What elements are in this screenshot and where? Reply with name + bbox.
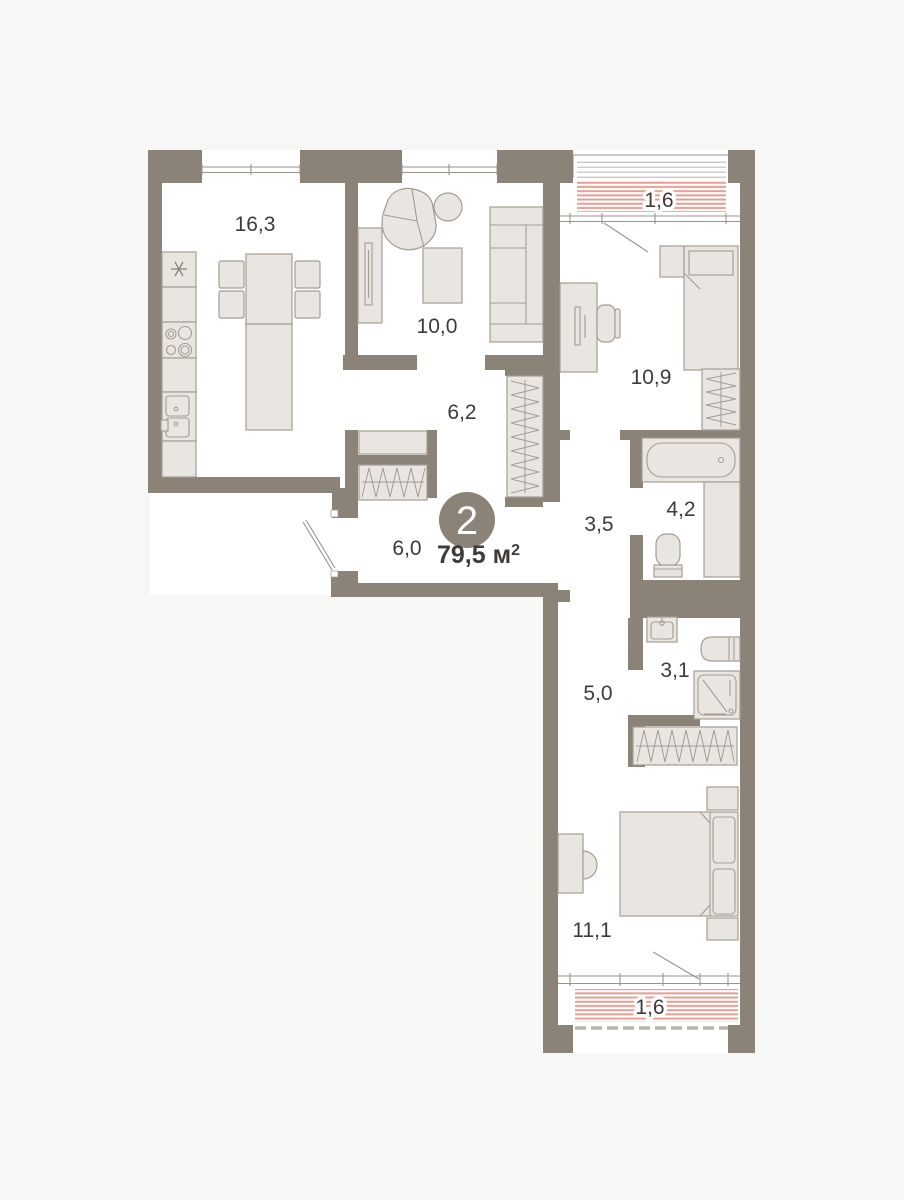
kitchen-cabinet (162, 358, 196, 392)
rooms-count: 2 (456, 499, 478, 543)
label-hall-inner: 3,5 (584, 513, 613, 536)
wall-segment (427, 430, 437, 498)
side-table (434, 193, 462, 221)
office-chair (597, 305, 615, 342)
label-living: 10,0 (417, 315, 458, 338)
wardrobe-bedroom-large (633, 727, 737, 765)
balcony-gray-hatch (577, 159, 726, 178)
dining-table (246, 254, 292, 324)
bed-double (620, 812, 738, 916)
wall-segment (630, 535, 643, 580)
nightstand (660, 246, 684, 277)
chair (295, 291, 320, 318)
wardrobe-bedroom-small (702, 369, 740, 430)
dresser (558, 834, 583, 893)
total-area: 79,5 м2 (437, 541, 520, 569)
wardrobe-coat (507, 376, 543, 497)
bathtub (642, 438, 740, 482)
entry-shelf (359, 431, 427, 454)
sofa (490, 207, 543, 342)
kitchen-cabinet (162, 287, 196, 322)
wall-segment (543, 1025, 573, 1053)
wall-segment (628, 715, 700, 726)
tap (161, 420, 168, 431)
shower (694, 671, 740, 719)
wall-segment (740, 150, 755, 1053)
wall-segment (497, 150, 573, 183)
label-corridor: 5,0 (583, 682, 612, 705)
nightstand (707, 787, 738, 810)
wall-segment (331, 583, 558, 597)
washing-machine (701, 637, 740, 661)
chair (219, 291, 244, 318)
wall-segment (358, 455, 427, 465)
wall-segment (630, 440, 643, 488)
wall-segment (505, 367, 545, 376)
door-hinge (331, 510, 338, 517)
chair (295, 261, 320, 288)
label-bedroom-large: 11,1 (572, 919, 611, 942)
floor-plan-page: 16,3 10,0 6,2 1,6 10,9 3,5 4,2 6,0 3,1 5… (0, 0, 904, 1200)
bed-single (684, 246, 738, 370)
wall-segment (505, 497, 543, 507)
wall-segment (148, 150, 162, 493)
wall-segment (728, 1025, 755, 1053)
wall-segment (558, 590, 570, 602)
tv-stand (358, 228, 382, 323)
label-balcony-bottom: 1,6 (635, 996, 664, 1019)
entry-closet (359, 431, 427, 500)
total-area-unit: м (493, 541, 512, 569)
label-kitchen: 16,3 (235, 213, 276, 236)
wall-segment (345, 430, 358, 515)
label-bathroom: 4,2 (666, 498, 695, 521)
office-chair-back (615, 309, 620, 338)
label-laundry: 3,1 (660, 659, 689, 682)
label-hall-upper: 6,2 (447, 401, 476, 424)
wall-segment (343, 355, 417, 370)
total-area-sup: 2 (511, 542, 520, 559)
chair (219, 261, 244, 288)
desk (560, 283, 597, 372)
floor-plan: 16,3 10,0 6,2 1,6 10,9 3,5 4,2 6,0 3,1 5… (0, 0, 904, 1200)
label-balcony-top: 1,6 (644, 189, 673, 212)
door-hinge (331, 571, 338, 577)
wall-segment (557, 430, 570, 440)
kitchen-cabinet (162, 441, 196, 477)
wall-segment (543, 583, 558, 1053)
total-area-value: 79,5 (437, 541, 486, 569)
nightstand (707, 918, 738, 940)
toilet (654, 534, 682, 577)
coffee-table (423, 248, 462, 303)
wall-segment (630, 580, 740, 618)
kitchen-island (246, 324, 292, 430)
label-bedroom-small: 10,9 (631, 366, 672, 389)
wall-segment (628, 618, 643, 670)
wall-segment (148, 477, 340, 493)
wall-segment (345, 150, 358, 370)
laundry-sink (647, 617, 677, 642)
wall-segment (543, 150, 560, 502)
vanity-counter (704, 482, 740, 577)
label-hall-entry: 6,0 (392, 537, 421, 560)
